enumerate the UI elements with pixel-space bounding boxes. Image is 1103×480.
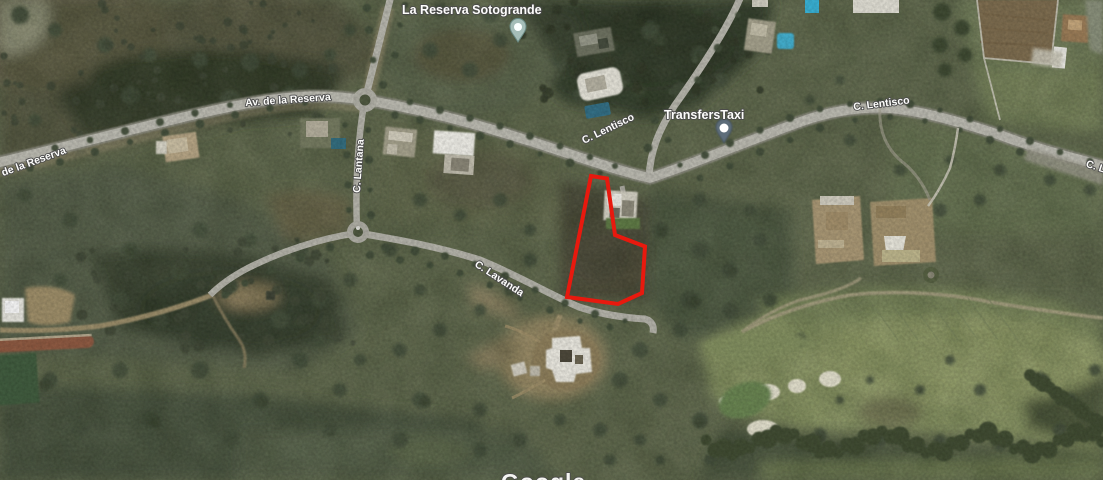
svg-text:TransfersTaxi: TransfersTaxi	[664, 108, 744, 122]
svg-text:Google: Google	[501, 469, 586, 480]
svg-text:La Reserva Sotogrande: La Reserva Sotogrande	[402, 3, 542, 17]
